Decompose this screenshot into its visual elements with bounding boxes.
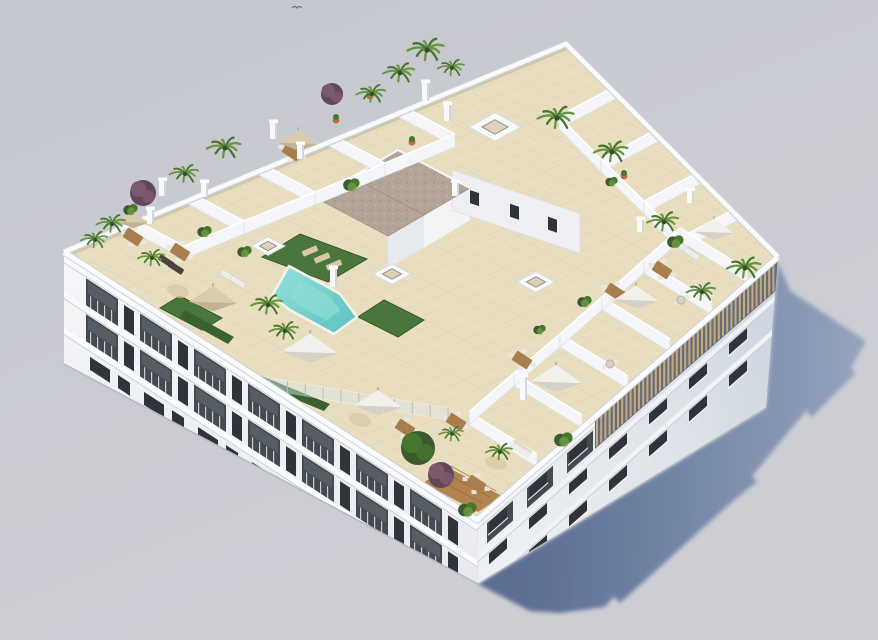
purple-tree [321, 83, 343, 105]
round-table [606, 360, 614, 368]
chair [685, 295, 689, 299]
chimney-pillar [146, 207, 155, 225]
pot-plant [409, 136, 415, 142]
chair [671, 273, 676, 277]
chair [463, 477, 468, 481]
railing-baluster [367, 476, 368, 489]
railing-baluster [252, 401, 253, 414]
bush-foliage [559, 437, 569, 447]
bush-foliage [241, 250, 249, 258]
railing-baluster [104, 341, 105, 354]
pillar-front [270, 122, 275, 139]
bush-foliage [463, 507, 473, 517]
railing-baluster [435, 520, 436, 533]
bush-foliage [609, 180, 616, 187]
railing-baluster [266, 410, 267, 423]
railing-baluster [111, 310, 112, 323]
purple-tree [130, 180, 156, 206]
railing-baluster [374, 480, 375, 493]
railing-baluster [104, 305, 105, 318]
chair [405, 417, 410, 421]
railing-baluster [313, 477, 314, 490]
bush-foliage [201, 230, 209, 238]
pillar-side [692, 190, 694, 203]
pillar-side [335, 268, 337, 287]
palm-crown [150, 256, 154, 260]
pillar-side [302, 144, 304, 159]
railing-baluster [212, 411, 213, 424]
pillar-front [330, 268, 335, 287]
pillar-front [687, 190, 692, 203]
round-table [677, 296, 685, 304]
palm-crown [450, 432, 454, 436]
palm-crown [554, 115, 559, 120]
chair [476, 473, 481, 477]
tree-canopy [440, 472, 453, 485]
pillar-cap [158, 178, 167, 182]
chimney-pillar [421, 80, 430, 102]
chimney-pillar [451, 180, 460, 197]
railing-baluster [414, 506, 415, 519]
pillar-cap [519, 374, 528, 378]
railing-baluster [219, 380, 220, 393]
chimney-pillar [443, 102, 452, 122]
railing-baluster [327, 450, 328, 463]
railing-baluster [158, 340, 159, 353]
railing-baluster [367, 512, 368, 525]
render-viewport [0, 0, 878, 640]
bush-foliage [537, 328, 544, 335]
railing-baluster [374, 516, 375, 529]
chair [485, 487, 490, 491]
railing-baluster [205, 407, 206, 420]
pillar-front [159, 180, 164, 196]
tree-canopy [416, 444, 433, 461]
chimney-pillar [519, 374, 528, 401]
chair [662, 259, 667, 263]
chair [649, 263, 654, 267]
railing-baluster [273, 451, 274, 464]
chair [614, 359, 618, 363]
chair [602, 285, 607, 289]
railing-baluster [320, 481, 321, 494]
railing-baluster [90, 332, 91, 345]
palm-crown [662, 220, 667, 225]
palm-crown [370, 92, 374, 96]
chair [443, 415, 448, 419]
bush-foliage [672, 239, 681, 248]
railing-baluster [97, 300, 98, 313]
pillar-side [642, 219, 644, 232]
pillar-front [422, 82, 427, 101]
pillar-side [164, 180, 166, 196]
chimney-pillar [296, 142, 305, 160]
railing-baluster [205, 371, 206, 384]
chair [522, 349, 527, 353]
railing-baluster [381, 485, 382, 498]
railing-baluster [360, 471, 361, 484]
plant-pot [333, 114, 340, 124]
chimney-pillar [329, 266, 338, 288]
railing-baluster [421, 511, 422, 524]
architectural-render [0, 0, 878, 640]
chair [531, 363, 536, 367]
chair [180, 241, 185, 245]
chair [673, 301, 677, 305]
pot-plant [333, 114, 339, 120]
chimney-pillar [686, 188, 695, 204]
railing-baluster [266, 446, 267, 459]
purple-tree [428, 462, 454, 488]
pillar-side [275, 122, 277, 139]
pillar-side [449, 104, 451, 121]
pillar-front [297, 144, 302, 159]
palm-crown [700, 290, 704, 294]
pillar-side [427, 82, 429, 101]
chair [288, 158, 293, 162]
palm-crown [424, 47, 429, 52]
pot-plant [621, 170, 627, 176]
chair [465, 425, 470, 429]
palm-crown [398, 71, 403, 76]
pillar-cap [451, 180, 460, 184]
palm-crown [498, 450, 502, 454]
chair [129, 243, 134, 247]
palm-crown [93, 238, 97, 242]
railing-baluster [259, 442, 260, 455]
railing-baluster [273, 415, 274, 428]
chair [615, 281, 620, 285]
pillar-cap [146, 207, 155, 211]
chimney-pillar [636, 217, 645, 233]
railing-baluster [90, 296, 91, 309]
chair [176, 258, 181, 262]
palm-crown [222, 145, 227, 150]
railing-baluster [313, 441, 314, 454]
railing-baluster [327, 486, 328, 499]
chair [472, 490, 477, 494]
railing-baluster [306, 472, 307, 485]
pillar-cap [636, 217, 645, 221]
pillar-cap [329, 266, 338, 270]
railing-baluster [111, 346, 112, 359]
chair [611, 298, 616, 302]
pillar-cap [686, 188, 695, 192]
railing-baluster [360, 507, 361, 520]
chair [509, 353, 514, 357]
pillar-cap [200, 180, 209, 184]
chimney-pillar [158, 178, 167, 197]
pillar-cap [269, 120, 278, 124]
railing-baluster [428, 515, 429, 528]
pillar-side [457, 182, 459, 196]
railing-baluster [252, 437, 253, 450]
pillar-side [206, 182, 208, 197]
railing-baluster [165, 381, 166, 394]
chair [279, 145, 284, 149]
railing-baluster [144, 331, 145, 344]
pillar-front [520, 376, 525, 400]
chair [167, 245, 172, 249]
palm-crown [742, 265, 747, 270]
railing-baluster [198, 366, 199, 379]
chimney-pillar [269, 120, 278, 140]
railing-baluster [320, 445, 321, 458]
pillar-side [525, 376, 527, 400]
palm-crown [609, 149, 614, 154]
pillar-front [201, 182, 206, 197]
palm-crown [266, 303, 271, 308]
green-tree [401, 431, 435, 465]
palm-crown [110, 222, 114, 226]
pillar-front [444, 104, 449, 121]
chair [142, 240, 147, 244]
plant-pot [409, 136, 416, 146]
pillar-cap [443, 102, 452, 106]
plant-pot [621, 170, 628, 180]
chair [392, 421, 397, 425]
tree-canopy [142, 190, 155, 203]
railing-baluster [219, 416, 220, 429]
pillar-front [452, 182, 457, 196]
chair [602, 365, 606, 369]
railing-baluster [212, 375, 213, 388]
railing-baluster [259, 406, 260, 419]
tree-canopy [331, 91, 342, 102]
pillar-front [637, 219, 642, 232]
railing-baluster [158, 376, 159, 389]
bush-foliage [581, 300, 589, 308]
bush-foliage [127, 208, 135, 216]
chair [658, 276, 663, 280]
railing-baluster [144, 367, 145, 380]
railing-baluster [381, 521, 382, 534]
bush-foliage [348, 182, 357, 191]
chair [456, 411, 461, 415]
pillar-front [147, 209, 152, 224]
chimney-pillar [200, 180, 209, 198]
pillar-side [152, 209, 154, 224]
palm-crown [183, 172, 187, 176]
railing-baluster [306, 436, 307, 449]
palm-crown [450, 66, 454, 70]
railing-baluster [151, 371, 152, 384]
railing-baluster [151, 335, 152, 348]
railing-baluster [198, 402, 199, 415]
railing-baluster [97, 336, 98, 349]
chair [518, 366, 523, 370]
palm-crown [283, 329, 287, 333]
pillar-cap [421, 80, 430, 84]
chair [189, 255, 194, 259]
railing-baluster [165, 345, 166, 358]
pillar-cap [296, 142, 305, 146]
